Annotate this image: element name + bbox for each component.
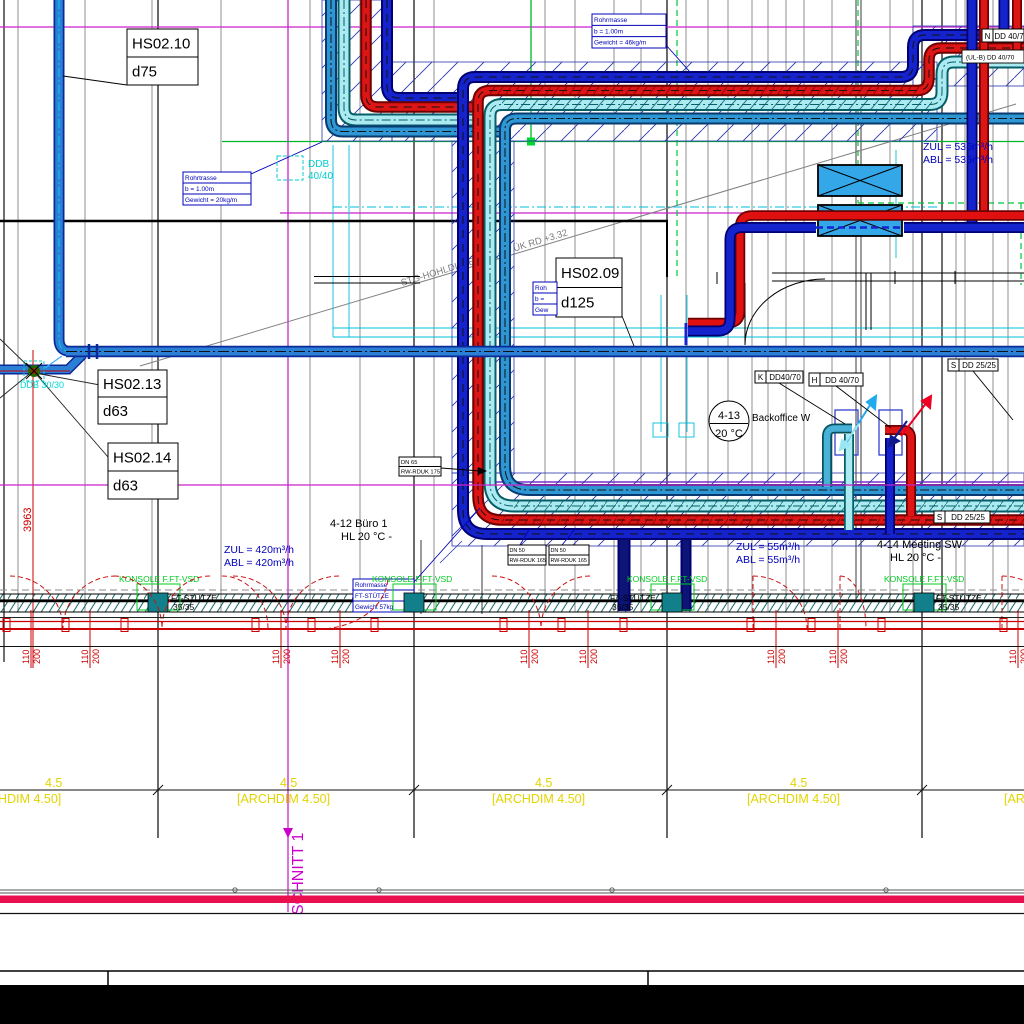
svg-text:H: H	[812, 376, 818, 385]
svg-text:b = 1.00m: b = 1.00m	[185, 186, 214, 193]
svg-text:DN 50: DN 50	[551, 548, 566, 554]
svg-text:4.5: 4.5	[45, 776, 62, 790]
svg-text:HS02.09: HS02.09	[561, 265, 619, 282]
svg-text:DDB: DDB	[308, 159, 329, 170]
svg-text:DN 50: DN 50	[510, 548, 525, 554]
svg-text:4.5: 4.5	[535, 776, 552, 790]
svg-text:35/35: 35/35	[938, 602, 960, 612]
svg-text:200: 200	[589, 649, 599, 664]
svg-text:[ARCHDIM: [ARCHDIM	[1004, 792, 1024, 806]
svg-text:RCHDIM 4.50]: RCHDIM 4.50]	[0, 792, 61, 806]
svg-text:HS02.14: HS02.14	[113, 449, 171, 466]
svg-text:200: 200	[32, 649, 42, 664]
svg-text:110: 110	[578, 650, 588, 664]
svg-text:ABL = 55m³/h: ABL = 55m³/h	[736, 554, 800, 566]
svg-text:[ARCHDIM 4.50]: [ARCHDIM 4.50]	[747, 792, 840, 806]
svg-text:KONSOLE F.FT-VSD: KONSOLE F.FT-VSD	[372, 574, 452, 584]
svg-text:Gewicht = 20kg/m: Gewicht = 20kg/m	[185, 197, 237, 204]
svg-text:20 °C: 20 °C	[715, 428, 743, 440]
svg-text:S: S	[951, 361, 956, 370]
svg-text:4-14 Meeting SW: 4-14 Meeting SW	[877, 539, 963, 551]
svg-text:110: 110	[519, 650, 529, 664]
svg-text:d63: d63	[103, 403, 128, 420]
svg-text:110: 110	[828, 650, 838, 664]
svg-text:ZUL = 420m³/h: ZUL = 420m³/h	[224, 544, 294, 556]
svg-text:HS02.10: HS02.10	[132, 35, 190, 52]
svg-text:KONSOLE F.FT-VSD: KONSOLE F.FT-VSD	[884, 574, 964, 584]
svg-text:HL 20 °C -: HL 20 °C -	[341, 531, 392, 543]
svg-text:110: 110	[21, 650, 31, 664]
svg-text:d63: d63	[113, 477, 138, 494]
svg-text:ZUL = 535m³/h: ZUL = 535m³/h	[923, 141, 993, 153]
svg-text:DD 40/70: DD 40/70	[825, 376, 859, 385]
svg-text:Gew: Gew	[535, 307, 549, 314]
svg-text:35/35: 35/35	[173, 602, 195, 612]
svg-text:HL 20 °C -: HL 20 °C -	[890, 552, 941, 564]
svg-text:200: 200	[530, 649, 540, 664]
svg-text:b = 1.00m: b = 1.00m	[594, 28, 623, 35]
svg-text:HS02.13: HS02.13	[103, 376, 161, 393]
svg-text:110: 110	[80, 650, 90, 664]
svg-text:Gewicht = 46kg/m: Gewicht = 46kg/m	[594, 40, 646, 47]
svg-text:200: 200	[777, 649, 787, 664]
svg-text:4-13: 4-13	[718, 410, 740, 422]
svg-text:Gewicht 57kg: Gewicht 57kg	[355, 604, 394, 611]
svg-text:DDB 30/30: DDB 30/30	[20, 380, 64, 390]
svg-text:DD 25/25: DD 25/25	[962, 361, 996, 370]
svg-text:200: 200	[282, 649, 292, 664]
svg-text:RW-RDUK 175: RW-RDUK 175	[401, 469, 440, 475]
svg-text:K: K	[758, 373, 764, 382]
svg-text:Roh: Roh	[535, 285, 547, 292]
svg-text:(UL-B) DD 40/70: (UL-B) DD 40/70	[966, 55, 1015, 62]
svg-text:DD40/70: DD40/70	[769, 373, 801, 382]
svg-text:200: 200	[839, 649, 849, 664]
svg-text:RW-RDUK 165: RW-RDUK 165	[510, 558, 546, 564]
svg-text:35/35: 35/35	[612, 602, 634, 612]
svg-text:DN 65: DN 65	[401, 460, 417, 466]
svg-text:DD 40/7: DD 40/7	[994, 32, 1024, 41]
svg-text:d125: d125	[561, 295, 594, 312]
svg-text:200: 200	[341, 649, 351, 664]
svg-text:FT-STÜTZE: FT-STÜTZE	[355, 592, 389, 600]
svg-text:N: N	[985, 32, 991, 41]
svg-text:d75: d75	[132, 63, 157, 80]
svg-text:110: 110	[766, 650, 776, 664]
svg-text:ABL = 535m³/h: ABL = 535m³/h	[923, 154, 993, 166]
svg-text:ABL = 420m³/h: ABL = 420m³/h	[224, 557, 294, 569]
svg-text:200: 200	[91, 649, 101, 664]
svg-text:4-12 Büro 1: 4-12 Büro 1	[330, 518, 387, 530]
svg-text:Rohrmasse: Rohrmasse	[594, 17, 628, 24]
svg-text:RW-RDUK 165: RW-RDUK 165	[551, 558, 587, 564]
svg-text:200: 200	[1019, 649, 1024, 664]
svg-text:110: 110	[271, 650, 281, 664]
svg-text:Rohrtrasse: Rohrtrasse	[185, 175, 217, 182]
svg-text:110: 110	[1008, 650, 1018, 664]
svg-text:b =: b =	[535, 296, 544, 303]
svg-text:3963: 3963	[22, 508, 34, 532]
svg-text:Backoffice W: Backoffice W	[752, 413, 811, 424]
svg-text:KONSOLE F.FT-VSD: KONSOLE F.FT-VSD	[627, 574, 707, 584]
svg-text:[ARCHDIM 4.50]: [ARCHDIM 4.50]	[237, 792, 330, 806]
svg-text:ZUL = 55m³/h: ZUL = 55m³/h	[736, 541, 800, 553]
svg-text:DD 25/25: DD 25/25	[951, 513, 985, 522]
svg-text:4.5: 4.5	[790, 776, 807, 790]
svg-text:4.5: 4.5	[280, 776, 297, 790]
svg-text:[ARCHDIM 4.50]: [ARCHDIM 4.50]	[492, 792, 585, 806]
svg-text:S: S	[937, 513, 942, 522]
svg-text:110: 110	[330, 650, 340, 664]
svg-text:40/40: 40/40	[308, 171, 333, 182]
